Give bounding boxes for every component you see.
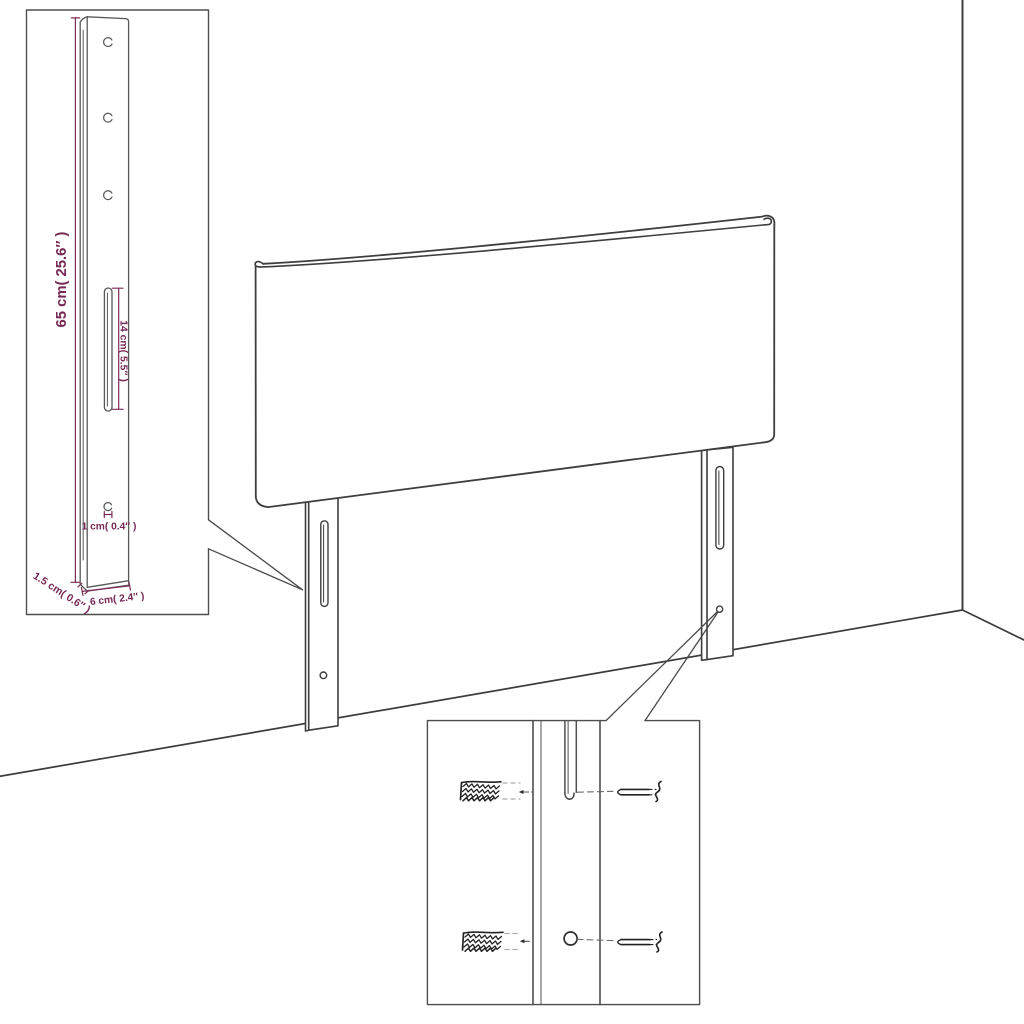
- svg-text:1 cm( 0.4″ ): 1 cm( 0.4″ ): [82, 522, 137, 533]
- svg-text:65 cm( 25.6″ ): 65 cm( 25.6″ ): [54, 231, 70, 327]
- svg-text:14 cm( 5.5″ ): 14 cm( 5.5″ ): [117, 320, 128, 382]
